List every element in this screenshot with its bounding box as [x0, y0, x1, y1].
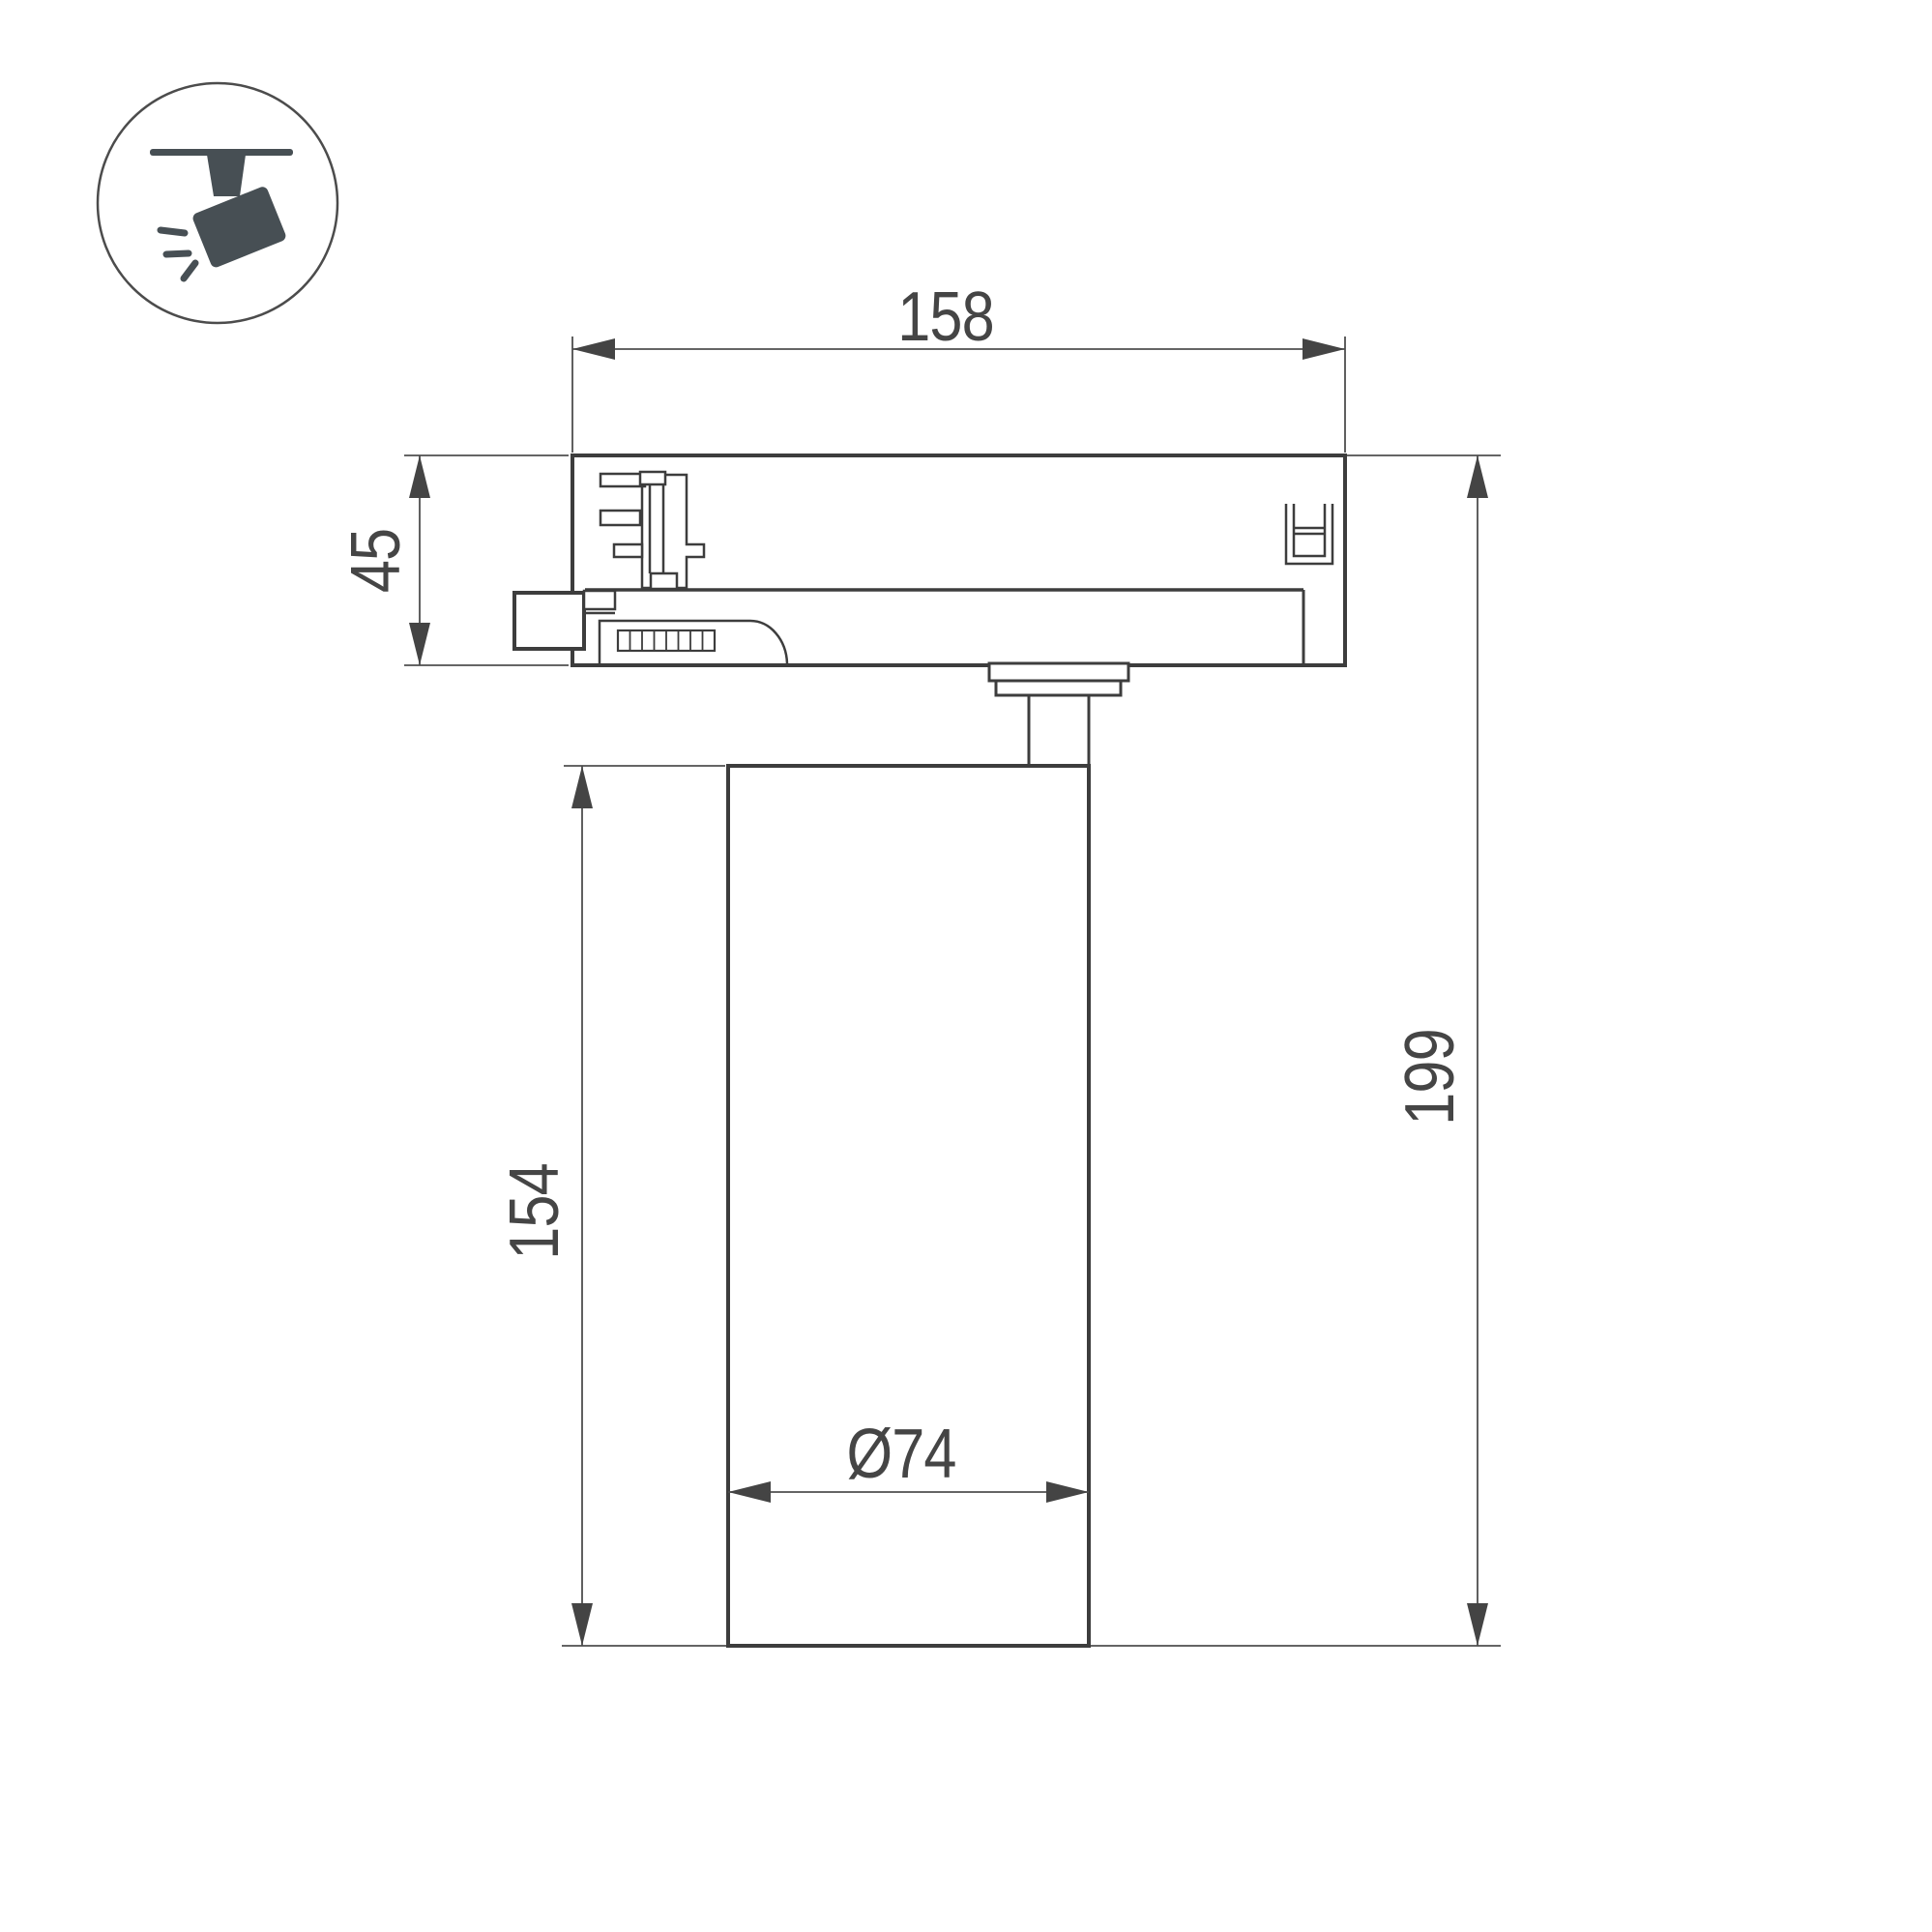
icon-circle: [98, 83, 337, 323]
lamp-body: [728, 766, 1089, 1646]
pin-foot: [651, 573, 677, 589]
latch-tab: [514, 593, 584, 649]
contact-pin-2: [600, 511, 640, 525]
arrowhead-right: [1303, 338, 1345, 360]
latch-tab-detail: [584, 591, 615, 609]
arrowhead-left: [572, 338, 615, 360]
track-adapter: [514, 455, 1345, 665]
flange-lower: [996, 681, 1121, 695]
arrowhead-up: [1467, 455, 1488, 498]
drawing-page: 158 45 154 199: [0, 0, 1932, 1932]
arrowhead-up: [409, 455, 430, 498]
dimension-label-diameter: Ø74: [846, 1416, 955, 1493]
pin-cap: [640, 472, 665, 484]
technical-drawing: 158 45 154 199: [0, 0, 1932, 1932]
dimension-label-158: 158: [897, 278, 994, 356]
icon-ceiling-track: [150, 149, 293, 156]
dimension-label-199: 199: [1391, 1029, 1469, 1126]
contact-pin-1: [600, 474, 645, 486]
arrowhead-up: [571, 766, 593, 808]
arrowhead-down: [571, 1603, 593, 1646]
flange-upper: [989, 663, 1128, 681]
arrowhead-down: [409, 623, 430, 665]
contact-pin-3: [614, 544, 642, 557]
swivel-joint: [989, 663, 1128, 766]
icon-stem: [207, 155, 246, 196]
dimension-label-45: 45: [337, 529, 415, 593]
track-spotlight-icon: [98, 83, 337, 323]
dimension-label-154: 154: [496, 1163, 573, 1260]
arrowhead-down: [1467, 1603, 1488, 1646]
